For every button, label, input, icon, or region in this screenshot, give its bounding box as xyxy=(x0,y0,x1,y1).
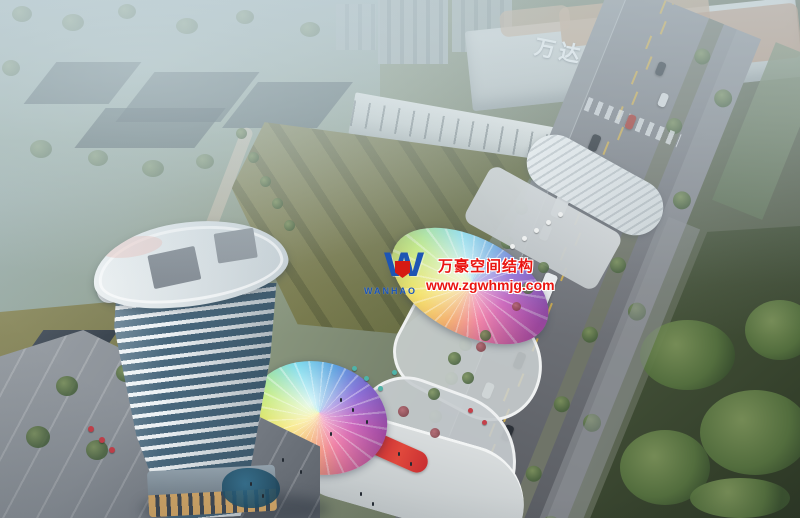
tree-cluster xyxy=(690,478,790,518)
pedestrian xyxy=(330,432,332,436)
aerial-rendering-canvas: 万达广场 xyxy=(0,0,800,518)
pedestrian xyxy=(300,470,302,474)
tree xyxy=(88,150,108,166)
tree-cluster xyxy=(700,390,800,475)
red-umbrella xyxy=(88,426,94,432)
pedestrian xyxy=(250,482,252,486)
tree xyxy=(284,220,295,231)
pedestrian xyxy=(372,502,374,506)
pedestrian xyxy=(262,494,264,498)
red-umbrella xyxy=(482,420,487,425)
tree xyxy=(272,198,283,209)
tree xyxy=(448,352,461,365)
pedestrian xyxy=(360,492,362,496)
tree xyxy=(428,388,440,400)
tree xyxy=(2,60,20,76)
tree xyxy=(56,376,78,396)
car xyxy=(654,61,667,77)
tree xyxy=(118,4,136,19)
residential-tower-block xyxy=(336,4,376,50)
wanhao-logo-text: WANHAO xyxy=(364,286,417,296)
white-parasol xyxy=(558,212,563,217)
tree xyxy=(196,154,214,169)
warehouse-building xyxy=(24,62,142,104)
tree xyxy=(692,46,713,67)
curved-glass-roof xyxy=(222,468,280,508)
teal-umbrella xyxy=(364,376,369,381)
red-tree xyxy=(398,406,409,417)
tree xyxy=(462,372,474,384)
pedestrian xyxy=(340,398,342,402)
tree xyxy=(142,160,164,177)
tree xyxy=(670,189,693,212)
tree xyxy=(523,463,544,484)
watermark-company-name: 万豪空间结构 xyxy=(438,255,534,276)
red-tree xyxy=(430,428,440,438)
tree xyxy=(248,152,259,163)
tree xyxy=(86,440,108,460)
pedestrian xyxy=(366,420,368,424)
tree xyxy=(300,22,320,37)
teal-umbrella xyxy=(392,370,397,375)
tree xyxy=(260,176,271,187)
residential-tower-block xyxy=(378,0,448,64)
teal-umbrella xyxy=(352,366,357,371)
tree xyxy=(580,324,601,345)
white-parasol xyxy=(534,228,539,233)
white-parasol xyxy=(522,236,527,241)
red-umbrella xyxy=(468,408,473,413)
tree xyxy=(26,426,50,448)
tree xyxy=(236,128,247,139)
warehouse-building xyxy=(74,108,225,148)
tree xyxy=(62,14,84,31)
tree xyxy=(551,394,572,415)
red-umbrella xyxy=(109,447,115,453)
watermark-website: www.zgwhmjg.com xyxy=(426,277,555,293)
tree xyxy=(12,6,32,22)
pedestrian xyxy=(410,462,412,466)
pedestrian xyxy=(352,408,354,412)
tree xyxy=(236,10,254,24)
red-umbrella xyxy=(99,437,105,443)
tree xyxy=(176,18,198,34)
rooftop-equipment xyxy=(214,228,258,264)
tree xyxy=(711,87,734,110)
pedestrian xyxy=(282,458,284,462)
watermark: W WANHAO 万豪空间结构 www.zgwhmjg.com xyxy=(362,248,602,310)
tree xyxy=(480,330,491,341)
white-parasol xyxy=(546,220,551,225)
pedestrian xyxy=(398,452,400,456)
tree xyxy=(30,140,52,158)
car xyxy=(657,92,670,108)
red-tree xyxy=(476,342,486,352)
teal-umbrella xyxy=(378,386,383,391)
